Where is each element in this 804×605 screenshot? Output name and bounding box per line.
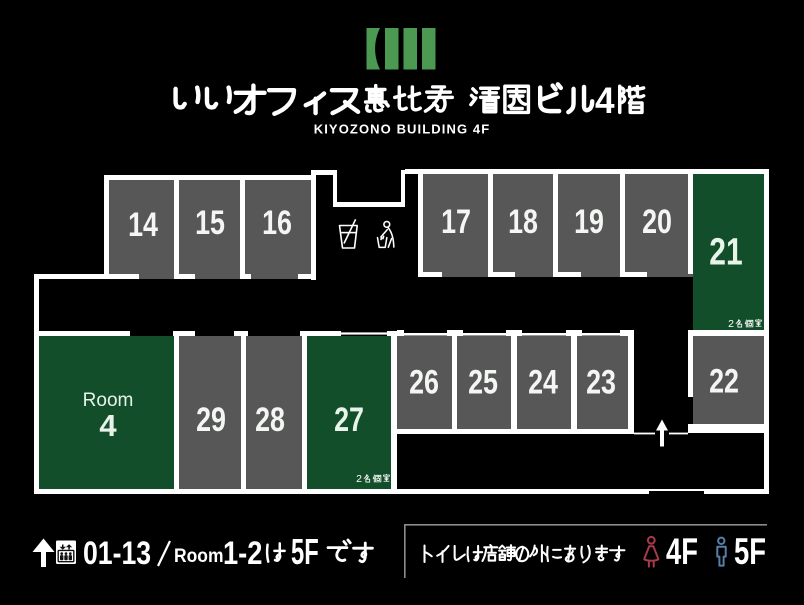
svg-text:17: 17 xyxy=(441,203,471,241)
svg-text:27: 27 xyxy=(334,401,364,439)
svg-text:20: 20 xyxy=(642,203,672,241)
svg-text:4: 4 xyxy=(99,408,117,443)
svg-text:4: 4 xyxy=(595,79,615,121)
svg-text:24: 24 xyxy=(528,364,558,402)
svg-text:14: 14 xyxy=(128,206,158,244)
svg-text:26: 26 xyxy=(409,364,439,402)
svg-text:15: 15 xyxy=(195,204,225,242)
svg-text:25: 25 xyxy=(468,364,498,402)
svg-text:Room: Room xyxy=(174,544,224,566)
svg-text:2: 2 xyxy=(728,318,734,330)
svg-text:4F: 4F xyxy=(666,531,698,572)
svg-text:18: 18 xyxy=(508,203,538,241)
svg-text:5F: 5F xyxy=(734,531,766,572)
svg-text:01-13: 01-13 xyxy=(83,536,151,572)
svg-text:2: 2 xyxy=(356,473,362,485)
svg-text:28: 28 xyxy=(255,401,285,439)
svg-text:22: 22 xyxy=(709,363,739,401)
svg-text:KIYOZONO BUILDING 4F: KIYOZONO BUILDING 4F xyxy=(314,122,491,137)
svg-text:19: 19 xyxy=(574,203,604,241)
svg-text:5F: 5F xyxy=(291,532,319,572)
svg-text:29: 29 xyxy=(196,401,226,439)
svg-text:23: 23 xyxy=(586,364,616,402)
svg-text:21: 21 xyxy=(709,231,742,273)
svg-text:1-2: 1-2 xyxy=(223,536,262,572)
svg-text:16: 16 xyxy=(262,204,292,242)
